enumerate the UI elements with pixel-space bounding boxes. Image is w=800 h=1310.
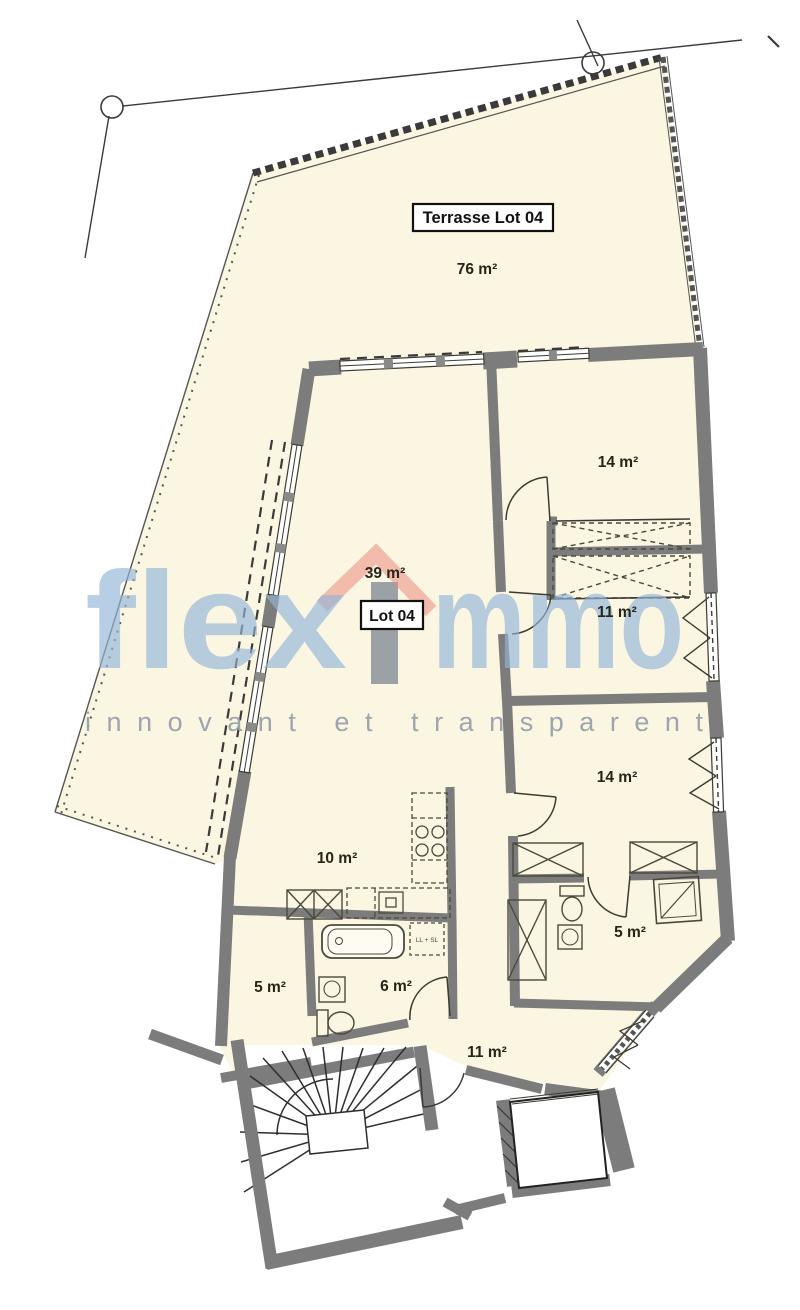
bathtub-icon <box>322 925 404 958</box>
washer-dryer-label: LL + SL <box>416 937 439 944</box>
wall <box>512 878 584 879</box>
watermark-brand-prefix: flex <box>85 544 347 698</box>
elevator-shaft <box>510 1092 607 1188</box>
lot-title: Lot 04 <box>369 608 415 625</box>
room-label-bathroom-center: 6 m² <box>380 978 412 995</box>
wall <box>452 918 453 1019</box>
wall <box>491 358 498 521</box>
terrace-title-box: Terrasse Lot 04 <box>413 204 553 231</box>
room-label-bedroom-bottom: 14 m² <box>597 769 638 786</box>
room-label-bedroom-top: 14 m² <box>598 454 639 471</box>
floor-plan-page: flex mmo innovant et transparent Terrass… <box>0 0 800 1310</box>
boundary-line-left <box>85 116 109 258</box>
survey-marker-icon <box>101 96 123 118</box>
wall <box>308 912 312 1016</box>
room-label-bathroom-right: 5 m² <box>614 924 646 941</box>
stair-landing <box>306 1110 368 1154</box>
terrace-title: Terrasse Lot 04 <box>423 209 545 227</box>
room-label-dressing: 11 m² <box>597 604 637 621</box>
wall <box>588 349 703 355</box>
watermark-brand-suffix: mmo <box>432 544 684 698</box>
room-label-living: 39 m² <box>365 565 406 582</box>
wall-stub-left <box>150 1034 222 1060</box>
lot-title-box: Lot 04 <box>361 601 423 629</box>
wall <box>514 1003 659 1007</box>
room-label-kitchen: 10 m² <box>317 850 358 867</box>
room-label-hall: 11 m² <box>467 1044 507 1061</box>
room-label-storage-left: 5 m² <box>254 979 286 996</box>
watermark-tagline: innovant et transparent <box>85 707 713 737</box>
wall <box>713 681 717 738</box>
wall <box>309 367 341 369</box>
watermark-i-stem <box>371 582 398 684</box>
terrace-area-label: 76 m² <box>457 261 498 278</box>
boundary-tick-corner <box>768 36 779 47</box>
wall <box>629 874 723 876</box>
floor-plan-drawing: flex mmo innovant et transparent Terrass… <box>0 0 800 1310</box>
boundary-tick <box>577 20 598 66</box>
